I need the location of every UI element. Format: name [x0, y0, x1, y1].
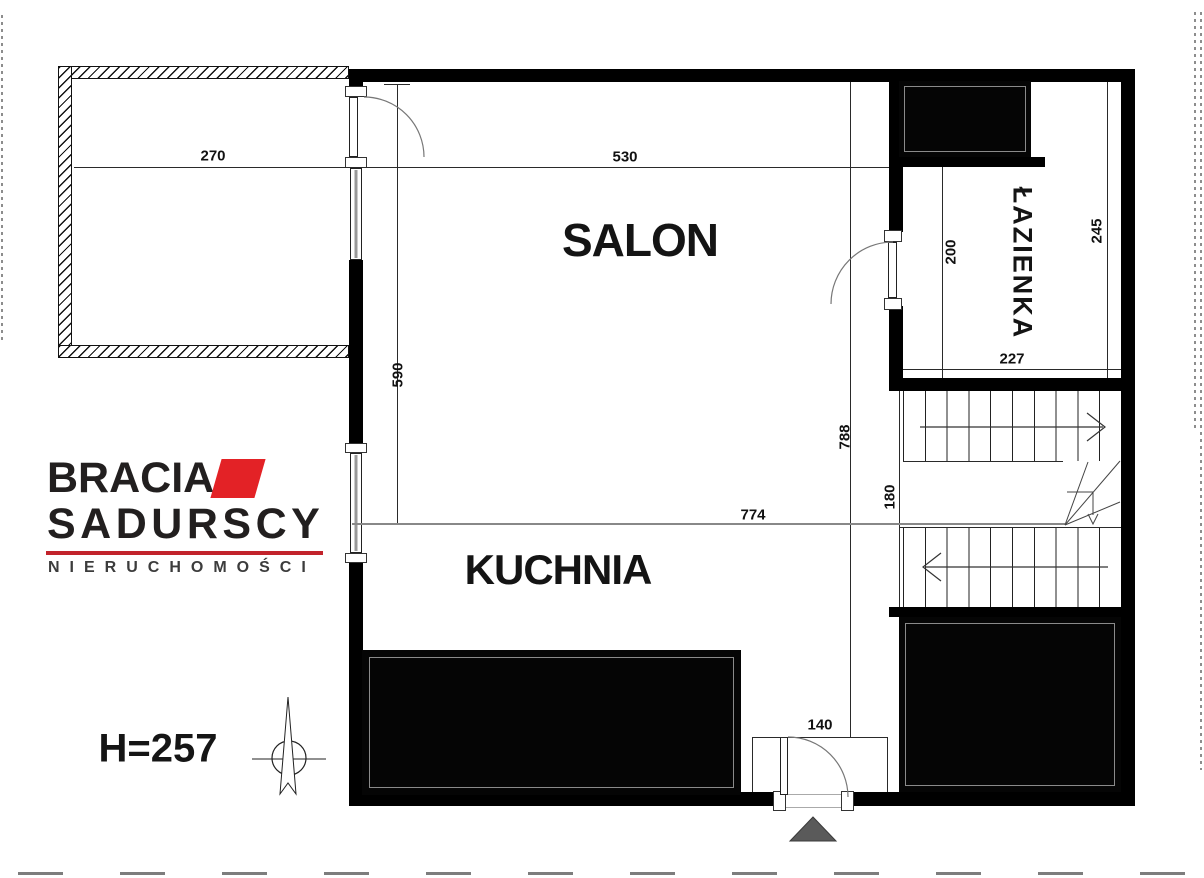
- room-label-lazienka: ŁAZIENKA: [1007, 187, 1038, 340]
- dim-270: 270: [200, 148, 225, 165]
- stairs-lower-flight: [903, 527, 1121, 607]
- bathroom-door-jamb-top: [884, 230, 902, 242]
- entrance-door-arc: [788, 737, 848, 797]
- bottom-edge-dashes: [18, 872, 1204, 875]
- balcony-door-jamb-top: [345, 86, 367, 97]
- dim-530: 530: [612, 149, 637, 166]
- bathroom-door-jamb-bottom: [884, 298, 902, 310]
- room-label-kuchnia: KUCHNIA: [465, 546, 652, 594]
- stairs-winder-lines: [1065, 461, 1120, 525]
- dim-200: 200: [943, 239, 960, 264]
- stairs-left-edge-line: [899, 391, 900, 607]
- left-edge-dashes: [1, 15, 3, 340]
- balcony-wall-bottom: [58, 345, 349, 358]
- stairs-upper-flight-edge: [903, 461, 1063, 462]
- stair-bottom-wall: [889, 607, 1135, 617]
- dim-140: 140: [807, 717, 832, 734]
- entrance-door-leaf: [780, 737, 788, 795]
- ext-line-140-right: [887, 737, 888, 792]
- dim-line-227: [903, 369, 1121, 370]
- wall-bottom-right-of-entrance: [852, 792, 1135, 806]
- dim-245: 245: [1089, 218, 1106, 243]
- ext-line-590: [397, 84, 398, 524]
- right-edge-dashes-inner: [1194, 12, 1196, 432]
- logo-red-parallelogram-icon: [210, 459, 265, 498]
- floor-plan: 270 530 590 774 788 180 200 245 227 140 …: [0, 0, 1204, 878]
- balcony-door-leaf: [349, 97, 358, 157]
- dim-788: 788: [837, 424, 854, 449]
- bathroom-bottom-wall: [889, 378, 1135, 391]
- stairs-upper-flight: [903, 391, 1121, 461]
- shaft-inner-outline: [904, 86, 1026, 152]
- dim-180: 180: [882, 484, 899, 509]
- dim-line-top: [74, 167, 889, 168]
- entrance-marker-icon: [790, 817, 836, 841]
- kitchen-window: [350, 453, 362, 553]
- logo-line1: BRACIA: [47, 454, 214, 503]
- ext-line-245: [1107, 82, 1108, 378]
- bottom-right-block: [899, 617, 1121, 792]
- ext-line-200: [942, 167, 943, 378]
- ext-line-140-left: [752, 737, 753, 792]
- entrance-threshold-bottom: [786, 807, 841, 808]
- compass-north-icon: [252, 697, 326, 794]
- salon-window: [350, 168, 362, 260]
- shaft-bottom-wall: [899, 157, 1045, 167]
- dim-line-140: [752, 737, 887, 738]
- logo-red-underline: [46, 551, 323, 555]
- ext-line-788: [850, 82, 851, 737]
- balcony-door-arc: [364, 97, 424, 157]
- bathroom-door-arc: [831, 242, 893, 304]
- dim-227: 227: [999, 351, 1024, 368]
- right-edge-dashes-outer: [1200, 12, 1202, 770]
- balcony-wall-top: [58, 66, 349, 79]
- wall-left-b: [349, 260, 363, 443]
- ceiling-height-note: H=257: [99, 727, 218, 772]
- dim-line-774: [352, 523, 1065, 525]
- logo-tagline: NIERUCHOMOŚCI: [48, 559, 316, 577]
- dim-590: 590: [390, 362, 407, 387]
- kitchen-inner-outline: [369, 657, 734, 788]
- bathroom-door-leaf: [888, 242, 897, 298]
- entrance-threshold-top: [786, 794, 841, 795]
- wall-left-c: [349, 563, 363, 792]
- balcony-wall-left: [58, 66, 72, 358]
- kitchen-window-jamb-bottom: [345, 553, 367, 563]
- logo-line2: SADURSCY: [47, 500, 324, 549]
- kitchen-block: [362, 650, 741, 795]
- dim-774: 774: [740, 507, 765, 524]
- entrance-jamb-right: [841, 791, 854, 811]
- wall-right: [1121, 69, 1135, 806]
- kitchen-window-jamb-top: [345, 443, 367, 453]
- room-label-salon: SALON: [562, 213, 718, 267]
- bathroom-shaft-block: [899, 81, 1031, 157]
- bottom-right-inner-outline: [905, 623, 1115, 786]
- stairs-lower-flight-edge: [899, 527, 1121, 528]
